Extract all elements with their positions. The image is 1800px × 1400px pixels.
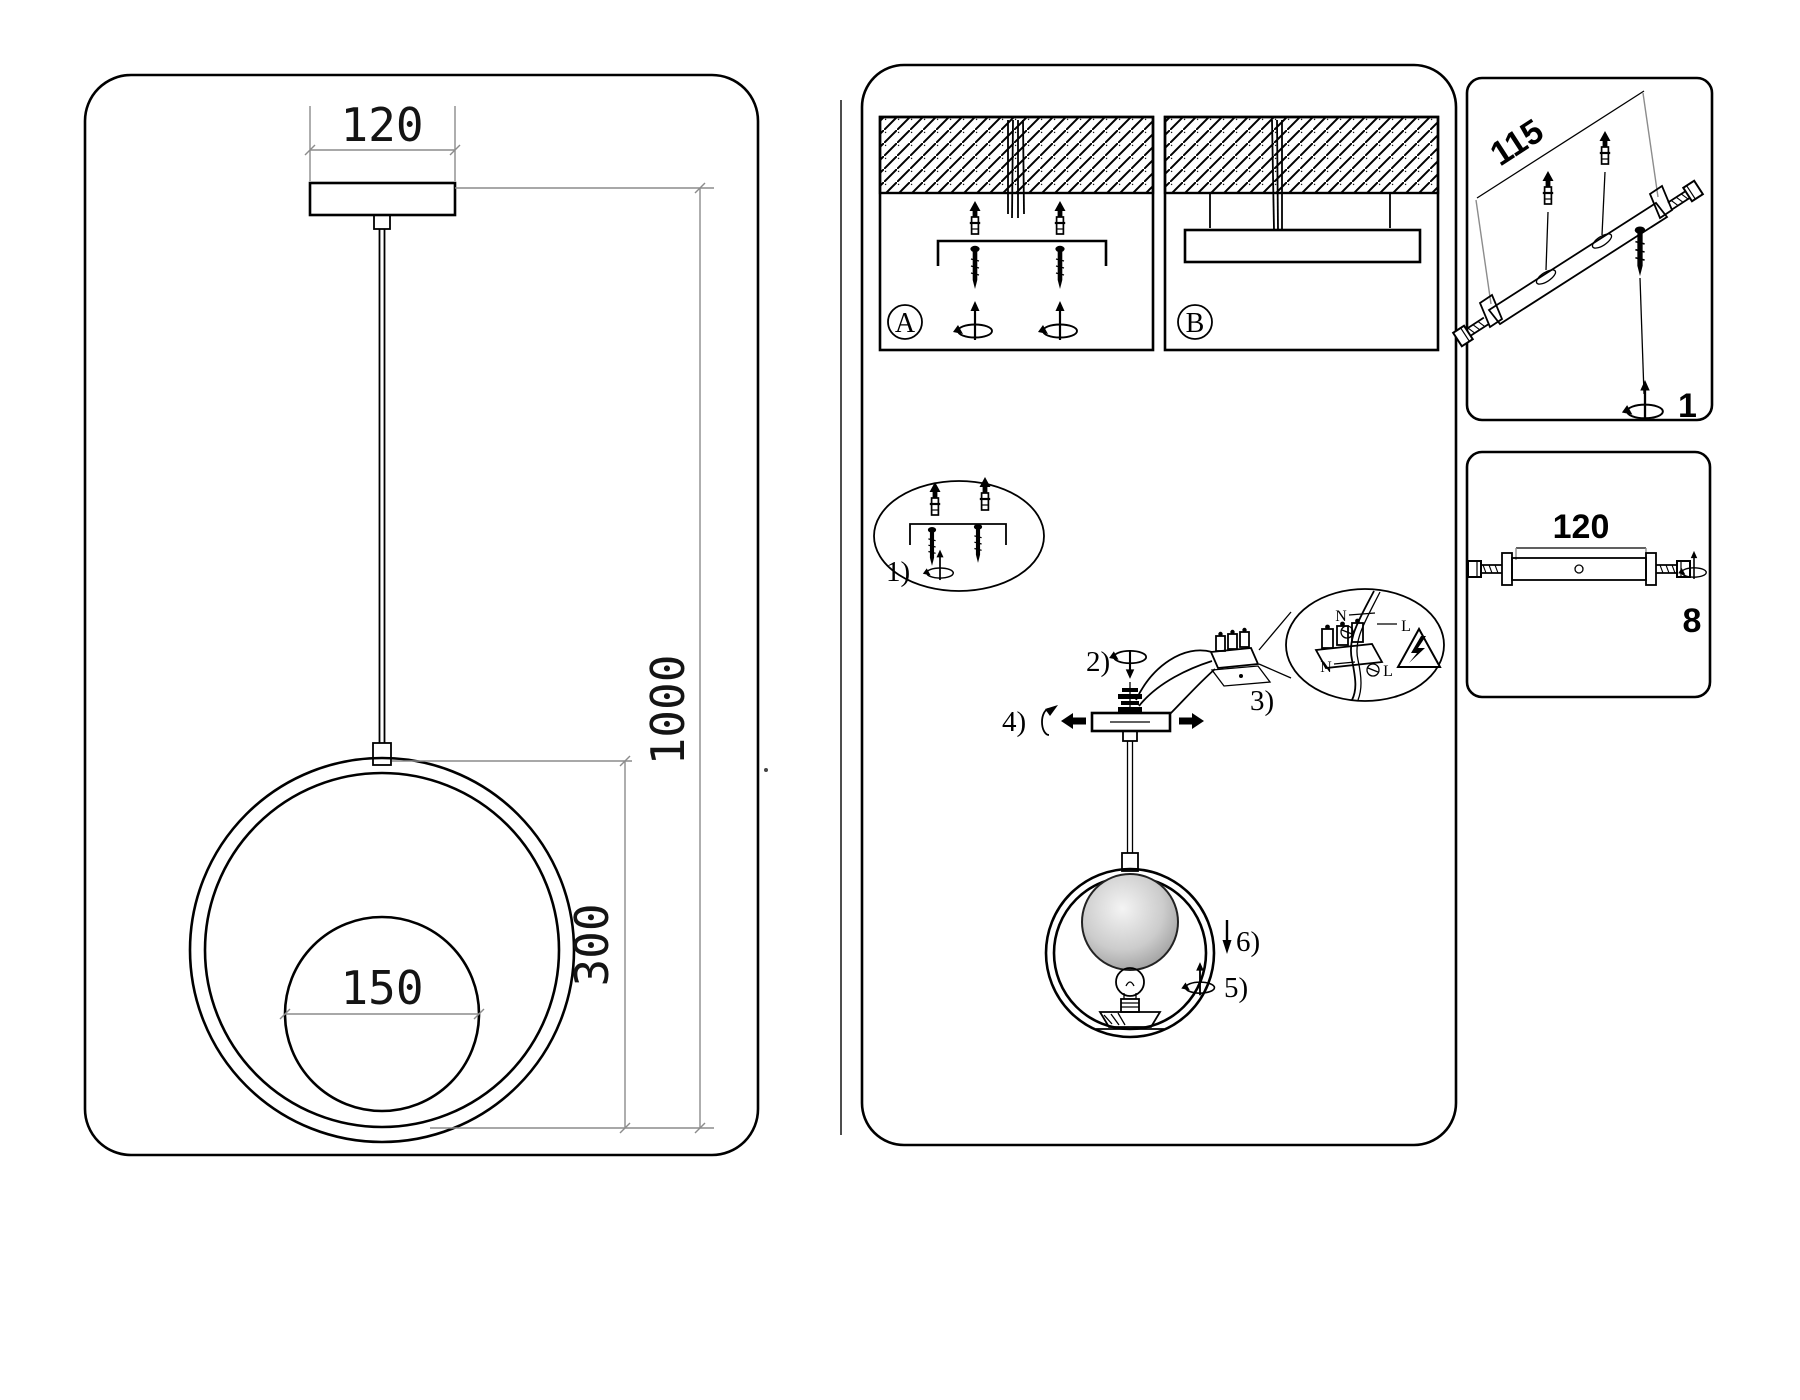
live-top-label: L xyxy=(1401,618,1411,635)
live-bottom-label: L xyxy=(1383,663,1393,680)
print-dot xyxy=(764,768,768,772)
dim-120-label: 120 xyxy=(340,98,423,152)
ceiling-hatch xyxy=(1165,117,1438,193)
option-b-label: B xyxy=(1186,308,1205,339)
step-3-label: 3) xyxy=(1250,685,1274,717)
lamp-globe xyxy=(1082,874,1178,970)
bulb-socket xyxy=(1121,999,1139,1012)
step-5-label: 5) xyxy=(1224,972,1248,1004)
right-top-panel-bracket-part: 115 1 xyxy=(1453,78,1712,425)
right-bottom-panel-bracket-part: 120 8 xyxy=(1467,452,1710,697)
mount-option-b: B xyxy=(1165,117,1438,350)
left-panel-dimension-drawing: 120 150 300 xyxy=(85,75,758,1155)
step-1-label: 1) xyxy=(886,556,910,588)
step-6-label: 6) xyxy=(1236,926,1260,958)
step-4-label: 4) xyxy=(1002,706,1026,738)
neutral-bottom-label: N xyxy=(1320,659,1332,676)
mount-option-a: A xyxy=(880,117,1153,350)
quantity-1-label: 1 xyxy=(1678,387,1697,425)
quantity-8-label: 8 xyxy=(1683,602,1702,640)
dim-150-label: 150 xyxy=(340,961,423,1015)
drawing-canvas: 120 150 300 xyxy=(0,0,1800,1400)
dim-1000-label: 1000 xyxy=(641,655,695,766)
instruction-sheet: 120 150 300 xyxy=(0,0,1800,1400)
dim-300-label: 300 xyxy=(565,903,619,986)
dim-120-label: 120 xyxy=(1553,508,1610,546)
step-2-label: 2) xyxy=(1086,646,1110,678)
neutral-top-label: N xyxy=(1335,608,1347,625)
ceiling-hatch xyxy=(880,117,1153,193)
middle-panel-installation: A B 1) xyxy=(862,65,1456,1145)
option-a-label: A xyxy=(895,308,916,339)
right-bottom-panel-border xyxy=(1467,452,1710,697)
